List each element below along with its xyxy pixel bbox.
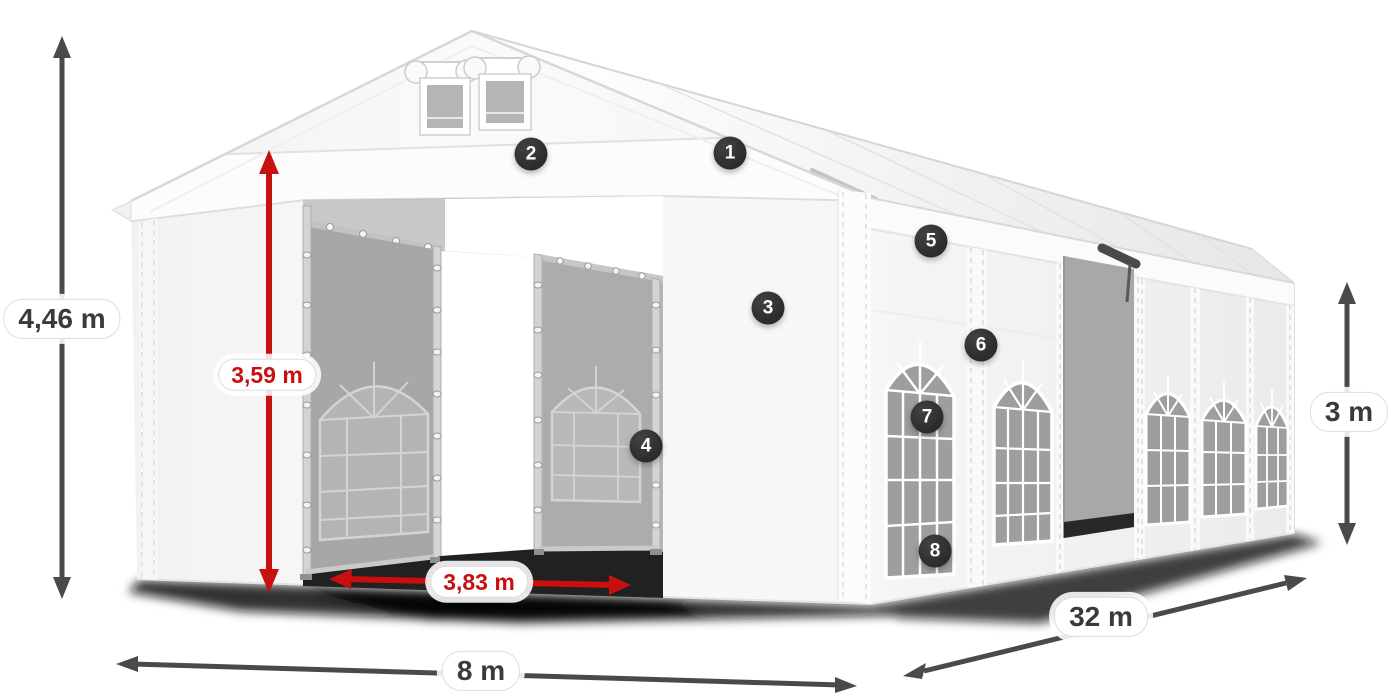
dim-front-width-label: 8 m: [442, 651, 520, 691]
entrance-interior: [300, 196, 663, 598]
dim-total-height-label: 4,46 m: [3, 299, 120, 339]
marker-8[interactable]: 8: [919, 535, 952, 568]
marker-5[interactable]: 5: [915, 225, 948, 258]
marker-7[interactable]: 7: [911, 401, 944, 434]
dim-entrance-height-label: 3,59 m: [218, 359, 316, 391]
tent-dimension-diagram: 4,46 m 3,59 m 3,83 m 8 m 32 m 3 m 1 2 3 …: [0, 0, 1400, 700]
dim-side-height-label: 3 m: [1310, 392, 1388, 432]
marker-2[interactable]: 2: [515, 138, 548, 171]
entrance-inner-door: [538, 257, 663, 549]
side-door-opening: [1064, 248, 1136, 538]
marker-1[interactable]: 1: [714, 137, 747, 170]
dim-side-length-label: 32 m: [1054, 597, 1148, 637]
eave-flare: [112, 201, 131, 221]
marker-4[interactable]: 4: [630, 430, 663, 463]
dim-entrance-width-label: 3,83 m: [430, 566, 528, 598]
tent-illustration: [0, 0, 1400, 700]
marker-3[interactable]: 3: [752, 292, 785, 325]
marker-6[interactable]: 6: [965, 329, 998, 362]
entrance-left-door: [309, 227, 433, 573]
